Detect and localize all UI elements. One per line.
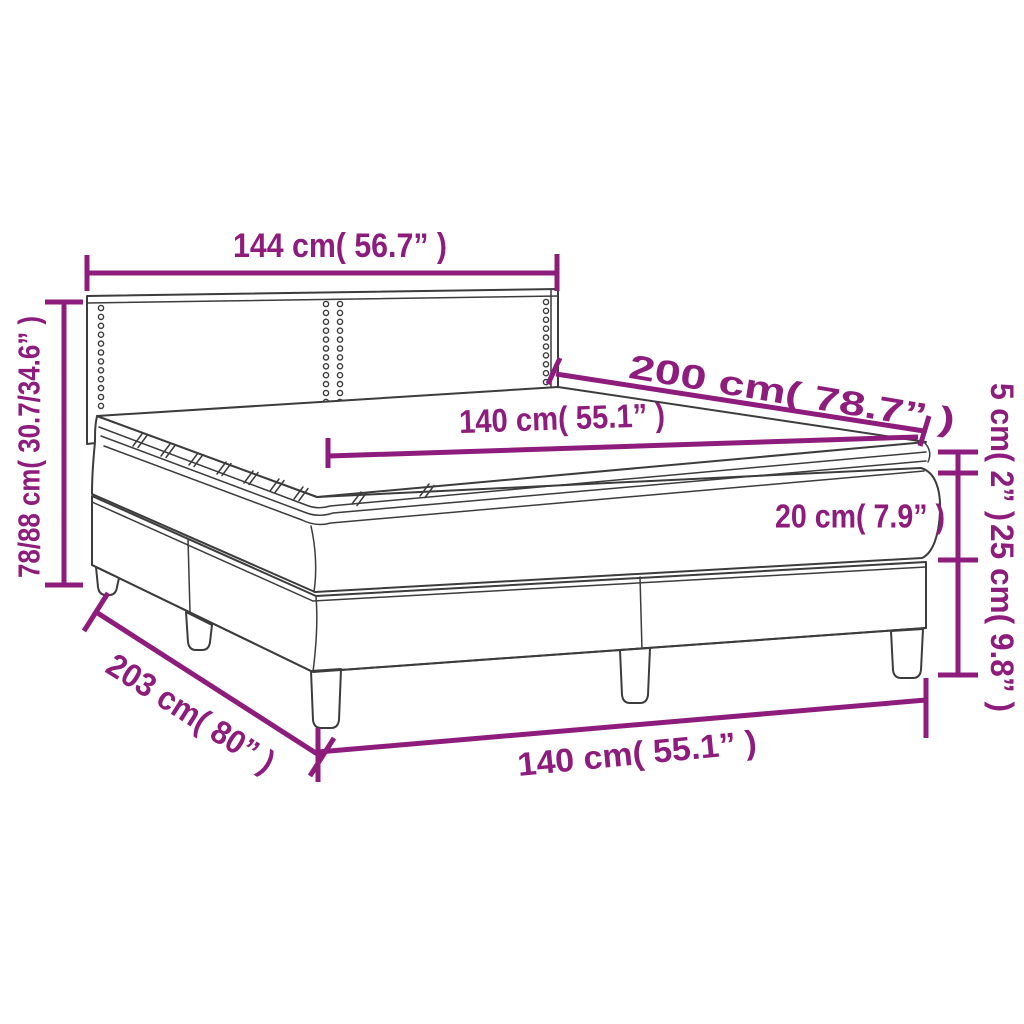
nailhead-dot bbox=[98, 386, 103, 391]
nailhead-dot bbox=[98, 350, 103, 355]
dimension-diagram-page: 144 cm( 56.7” ) 78/88 cm( 30.7/34.6” ) 2… bbox=[0, 0, 1024, 1024]
nailhead-dot bbox=[98, 305, 103, 310]
nailhead-dot bbox=[543, 326, 548, 331]
nailhead-dot bbox=[337, 382, 342, 387]
nailhead-dot bbox=[337, 390, 342, 395]
nailhead-dot bbox=[98, 314, 103, 319]
nailhead-dot bbox=[98, 403, 103, 408]
nailhead-dot bbox=[323, 364, 328, 369]
nailhead-dot bbox=[543, 299, 548, 304]
nailhead-dot bbox=[337, 337, 342, 342]
nailhead-dot bbox=[98, 394, 103, 399]
nailhead-dot bbox=[337, 301, 342, 306]
nailhead-dot bbox=[98, 377, 103, 382]
bed-dimension-diagram: 144 cm( 56.7” ) 78/88 cm( 30.7/34.6” ) 2… bbox=[0, 0, 1024, 1024]
nailhead-dot bbox=[323, 373, 328, 378]
dim-total-height: 78/88 cm( 30.7/34.6” ) bbox=[12, 302, 84, 585]
nailhead-dot bbox=[98, 359, 103, 364]
nailhead-dot bbox=[323, 390, 328, 395]
dim-label-topper-thickness: 5 cm( 2” ) bbox=[984, 383, 1020, 521]
nailhead-dot bbox=[98, 341, 103, 346]
dim-label-base-height: 25 cm( 9.8” ) bbox=[984, 524, 1020, 712]
nailhead-dot bbox=[323, 337, 328, 342]
nailhead-dot bbox=[323, 301, 328, 306]
nailhead-dot bbox=[337, 328, 342, 333]
dim-label-total-height: 78/88 cm( 30.7/34.6” ) bbox=[12, 316, 47, 578]
nailhead-dot bbox=[323, 319, 328, 324]
nailhead-dot bbox=[543, 344, 548, 349]
nailhead-dot bbox=[98, 332, 103, 337]
bed-leg bbox=[311, 669, 341, 728]
nailhead-dot bbox=[543, 371, 548, 376]
nailhead-dot bbox=[323, 310, 328, 315]
nailhead-dot bbox=[98, 323, 103, 328]
dim-headboard-width: 144 cm( 56.7” ) bbox=[87, 227, 557, 291]
nailhead-dot bbox=[323, 382, 328, 387]
nailhead-dot bbox=[337, 373, 342, 378]
nailhead-dot bbox=[337, 364, 342, 369]
dim-label-headboard-width: 144 cm( 56.7” ) bbox=[233, 227, 447, 265]
dim-label-mattress-thickness: 20 cm( 7.9” ) bbox=[775, 498, 945, 535]
bed-leg bbox=[891, 629, 923, 678]
nailhead-dot bbox=[543, 308, 548, 313]
nailhead-dot bbox=[337, 310, 342, 315]
nailhead-dot bbox=[543, 317, 548, 322]
nailhead-dot bbox=[98, 368, 103, 373]
nailhead-dot bbox=[543, 362, 548, 367]
nailhead-dot bbox=[323, 328, 328, 333]
nailhead-dot bbox=[323, 355, 328, 360]
nailhead-dot bbox=[543, 335, 548, 340]
dim-label-mattress-width: 140 cm( 55.1” ) bbox=[458, 396, 665, 440]
nailhead-dot bbox=[323, 346, 328, 351]
nailhead-dot bbox=[337, 355, 342, 360]
nailhead-dot bbox=[543, 353, 548, 358]
nailhead-dot bbox=[337, 319, 342, 324]
nailhead-dot bbox=[337, 346, 342, 351]
bed-leg bbox=[620, 648, 650, 703]
